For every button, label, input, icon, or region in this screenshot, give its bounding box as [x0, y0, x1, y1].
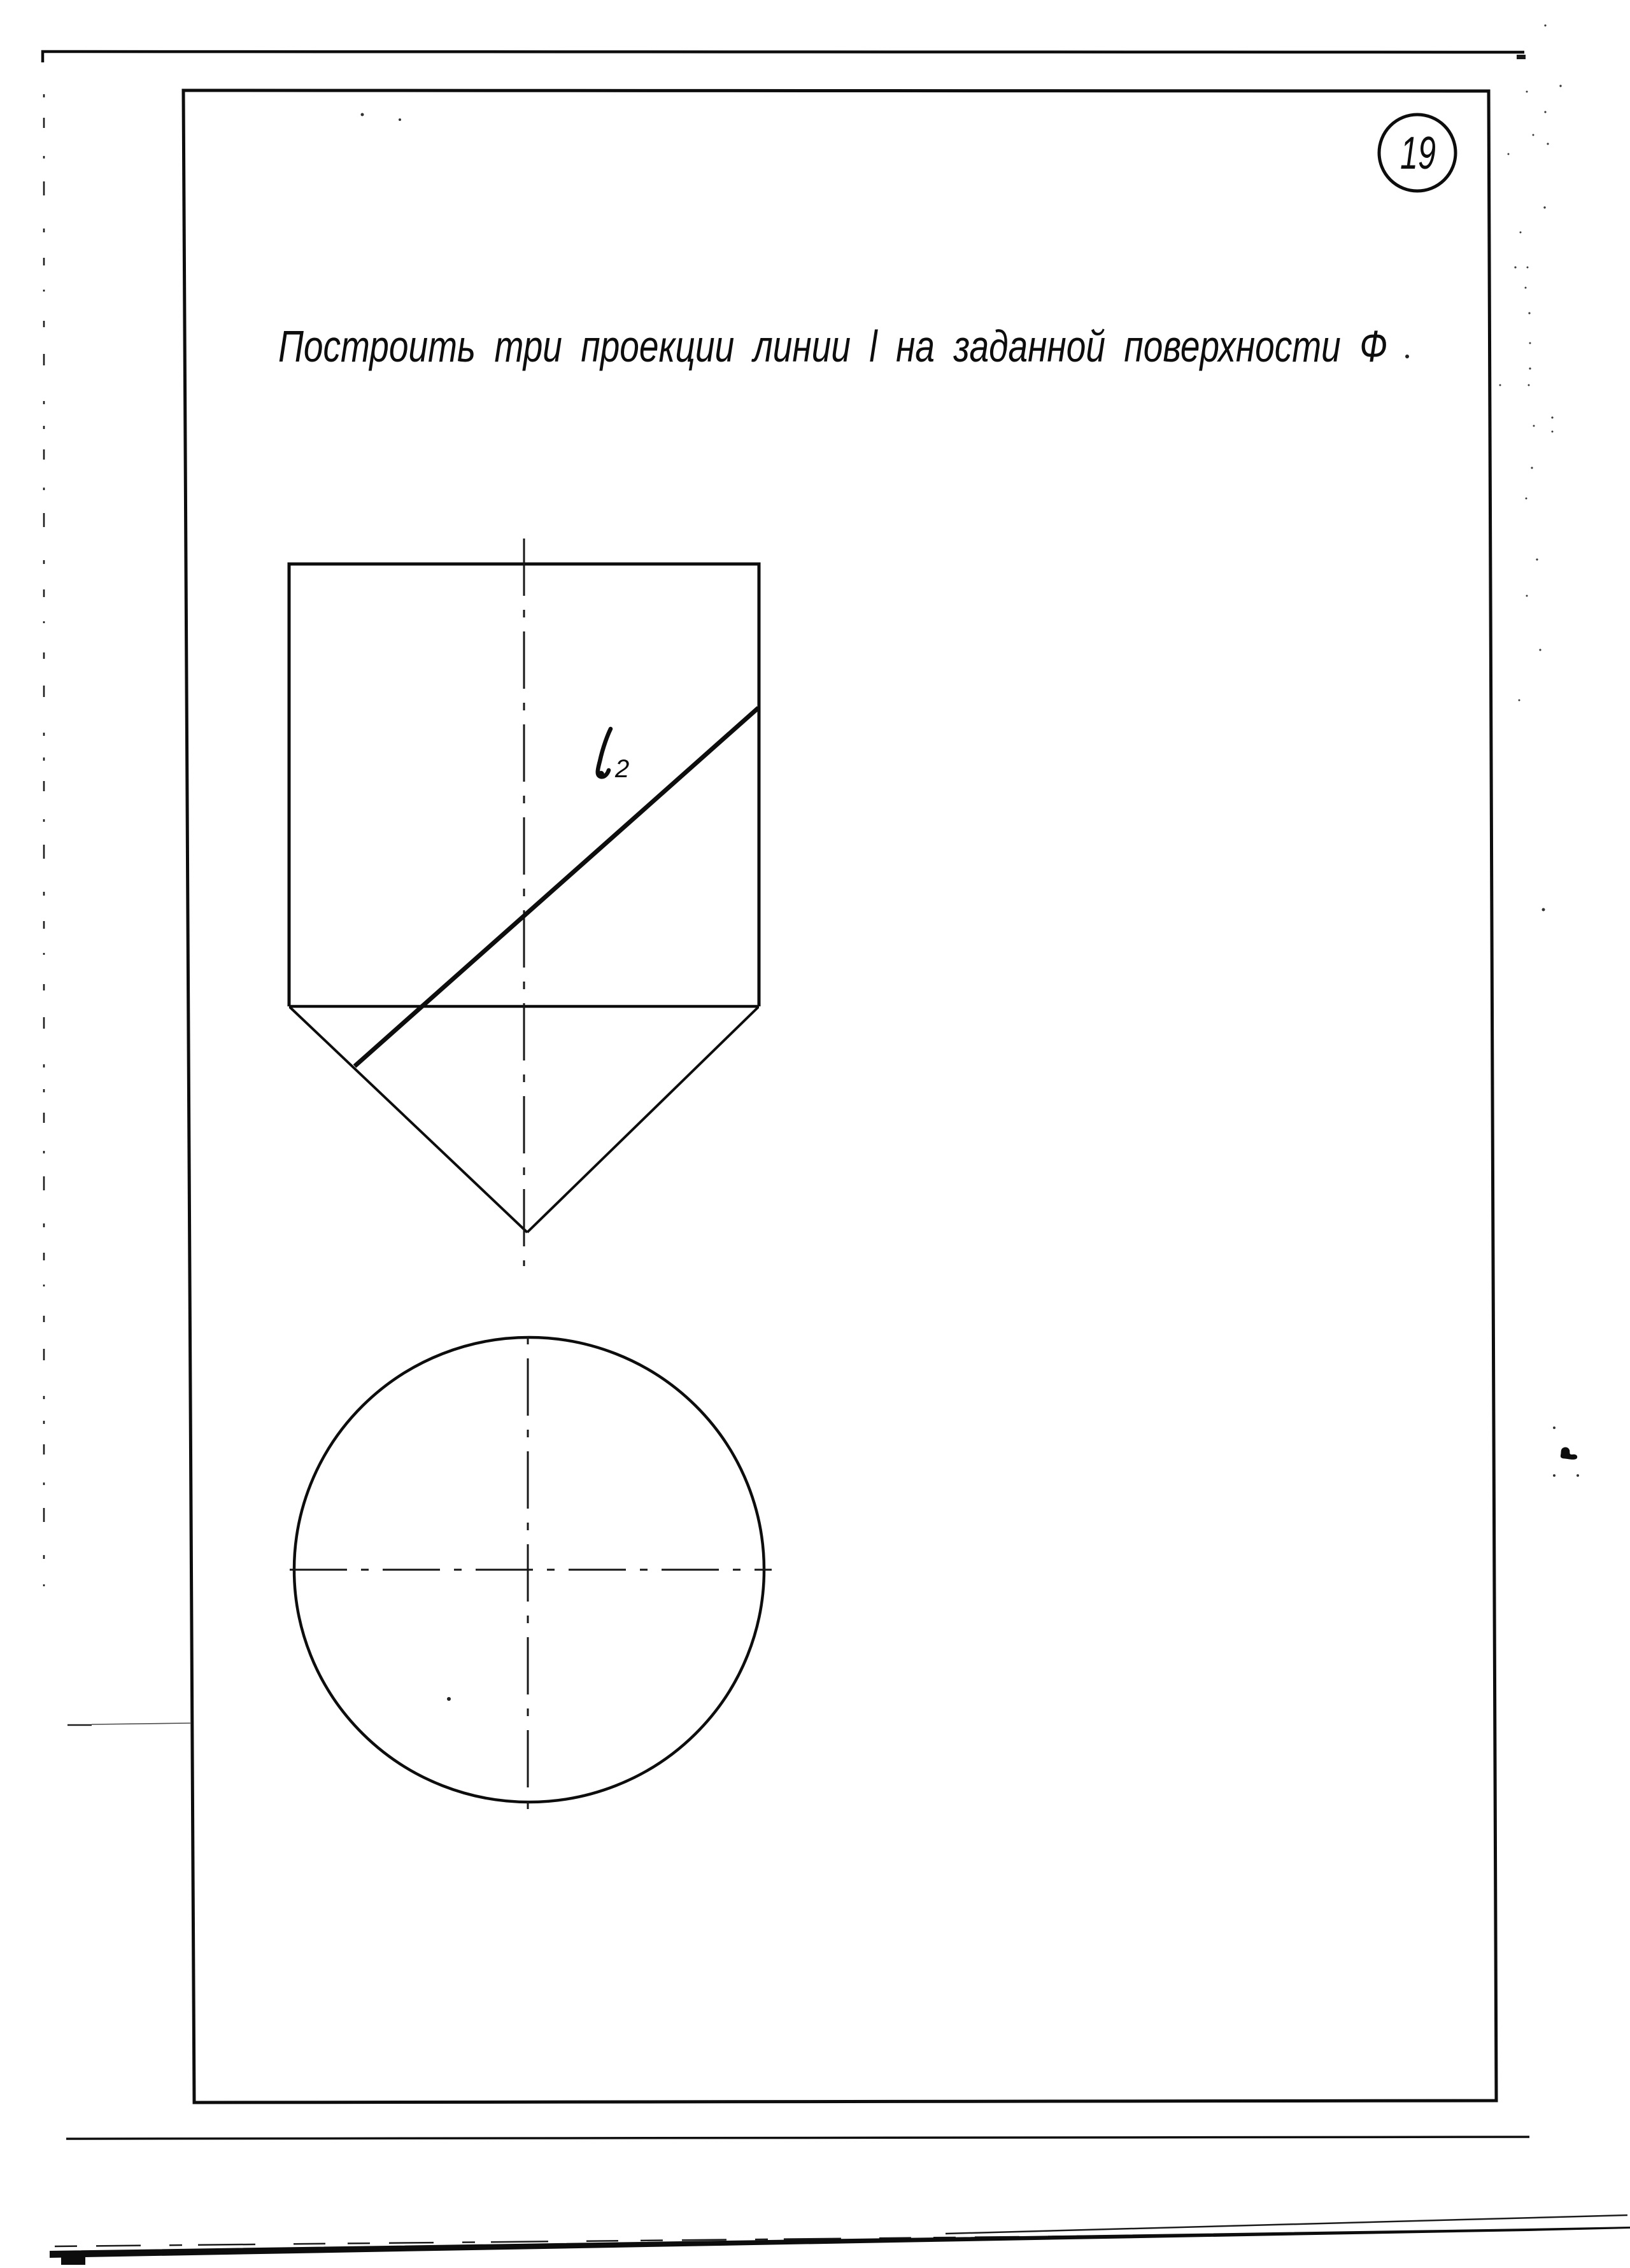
svg-text:Построить три проекции линии l: Построить три проекции линии l на заданн…	[278, 321, 1387, 371]
svg-text:19: 19	[1400, 128, 1436, 179]
svg-text:2: 2	[614, 755, 629, 783]
